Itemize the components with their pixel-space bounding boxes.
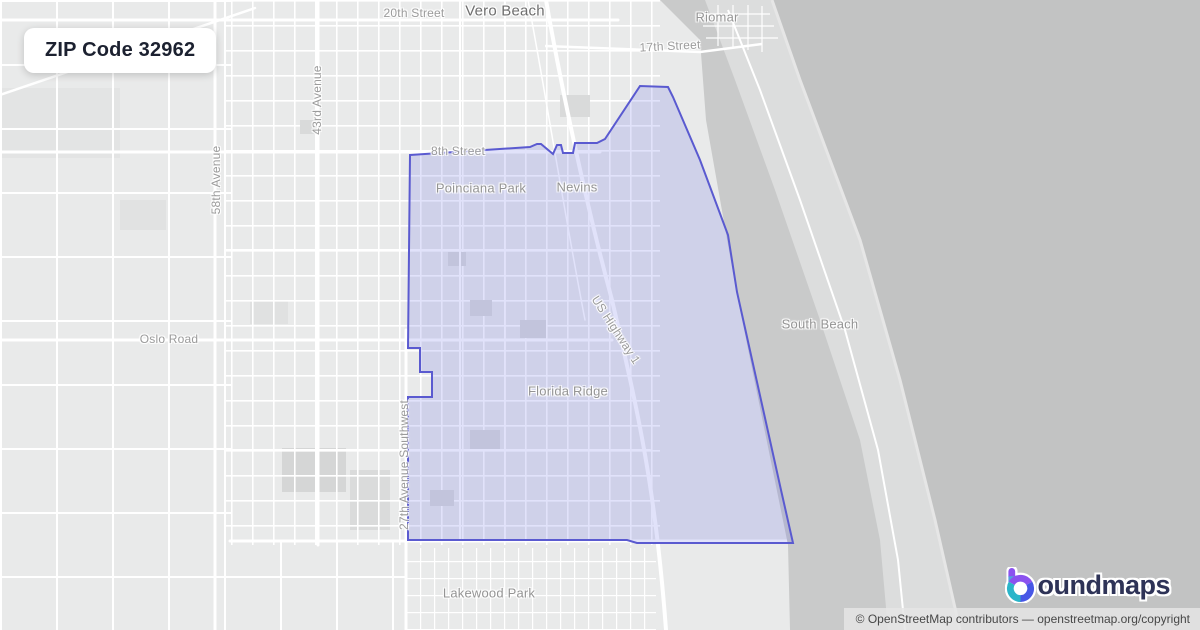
zip-code-badge-label: ZIP Code 32962 bbox=[45, 39, 195, 61]
boundmaps-logo-text: oundmaps bbox=[1037, 570, 1170, 601]
boundmaps-logo: oundmaps bbox=[1005, 567, 1170, 603]
zip-code-badge: ZIP Code 32962 bbox=[24, 28, 216, 73]
map-canvas[interactable]: 20th Street Vero Beach Riomar 17th Stree… bbox=[0, 0, 1200, 630]
attribution-link[interactable]: © OpenStreetMap contributors — openstree… bbox=[856, 612, 1190, 626]
boundmaps-logo-icon bbox=[1005, 567, 1036, 603]
attribution-bar: © OpenStreetMap contributors — openstree… bbox=[844, 608, 1200, 630]
map-svg bbox=[0, 0, 1200, 630]
